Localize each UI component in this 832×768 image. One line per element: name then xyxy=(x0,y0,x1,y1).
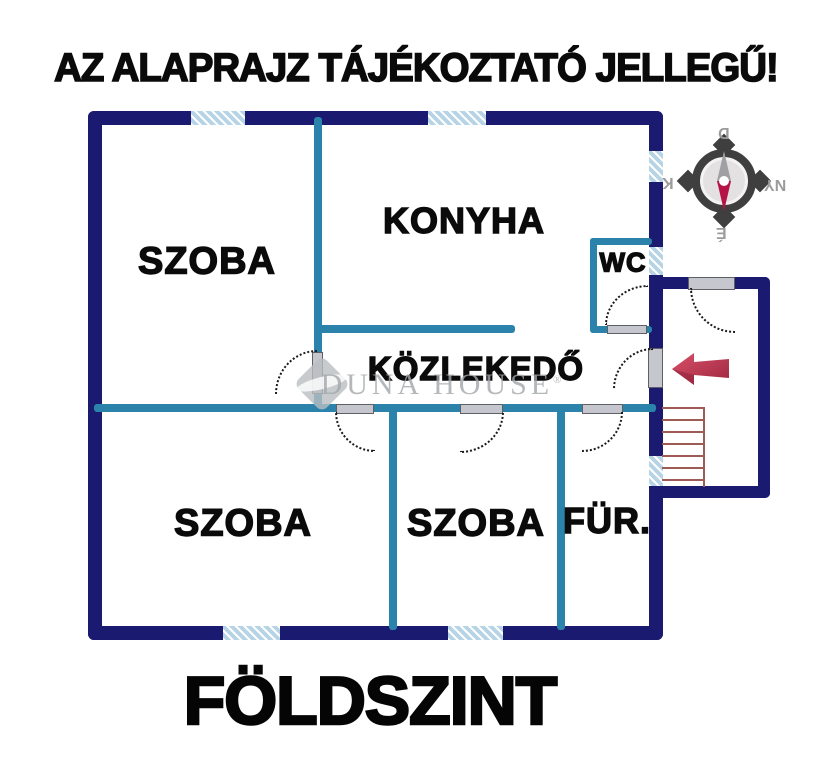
room-label-bottom-middle: SZOBA xyxy=(407,503,545,546)
door-sill-wc xyxy=(607,325,647,334)
partition-bottom-1 xyxy=(389,408,397,630)
kitchen-bottom-wall xyxy=(317,325,515,333)
door-arc-annex-entry xyxy=(690,288,735,333)
wall-left xyxy=(88,111,102,640)
compass-label-east: K xyxy=(662,173,674,191)
annex-wall-bottom xyxy=(656,486,770,498)
entrance-arrow-icon xyxy=(670,350,732,388)
window-top-1 xyxy=(191,111,245,125)
room-label-bottom-left: SZOBA xyxy=(174,503,312,546)
watermark-registered-mark: ® xyxy=(553,374,561,386)
compass-center-dot xyxy=(719,176,729,186)
window-top-2 xyxy=(428,111,486,125)
compass-label-west: NY xyxy=(764,175,786,193)
room-label-top-left: SZOBA xyxy=(138,241,276,284)
door-arc-room-bottom-middle xyxy=(460,412,504,453)
watermark-brand-text: DUNA HOUSE xyxy=(321,368,554,401)
floor-level-title: FÖLDSZINT xyxy=(0,662,740,740)
compass-label-north: É xyxy=(716,223,727,241)
wc-wall-top xyxy=(590,238,652,245)
disclaimer-title: AZ ALAPRAJZ TÁJÉKOZTATÓ JELLEGŰ! xyxy=(17,46,816,91)
compass-label-south: D xyxy=(718,123,730,141)
door-arc-bathroom xyxy=(582,412,623,452)
watermark-brand: DUNA HOUSE® xyxy=(321,368,562,402)
annex-wall-right xyxy=(758,277,770,498)
compass-rose: D É K NY xyxy=(676,131,772,231)
floor-plan-page: AZ ALAPRAJZ TÁJÉKOZTATÓ JELLEGŰ! xyxy=(0,0,832,768)
wall-top xyxy=(88,111,663,125)
window-bottom-1 xyxy=(223,626,280,640)
room-label-kitchen: KONYHA xyxy=(383,200,545,242)
door-arc-hallway-entrance xyxy=(613,348,653,389)
door-arc-room-bottom-left xyxy=(335,412,375,452)
door-arc-wc xyxy=(605,285,648,325)
window-right-3 xyxy=(649,456,663,486)
window-right-2 xyxy=(649,247,663,275)
stairs xyxy=(662,407,705,487)
room-label-bathroom: FÜR. xyxy=(563,500,651,542)
middle-wall xyxy=(94,404,656,412)
window-bottom-2 xyxy=(448,626,503,640)
wc-wall-left xyxy=(590,238,597,333)
room-label-wc: WC xyxy=(600,248,647,279)
wall-bottom xyxy=(88,626,663,640)
